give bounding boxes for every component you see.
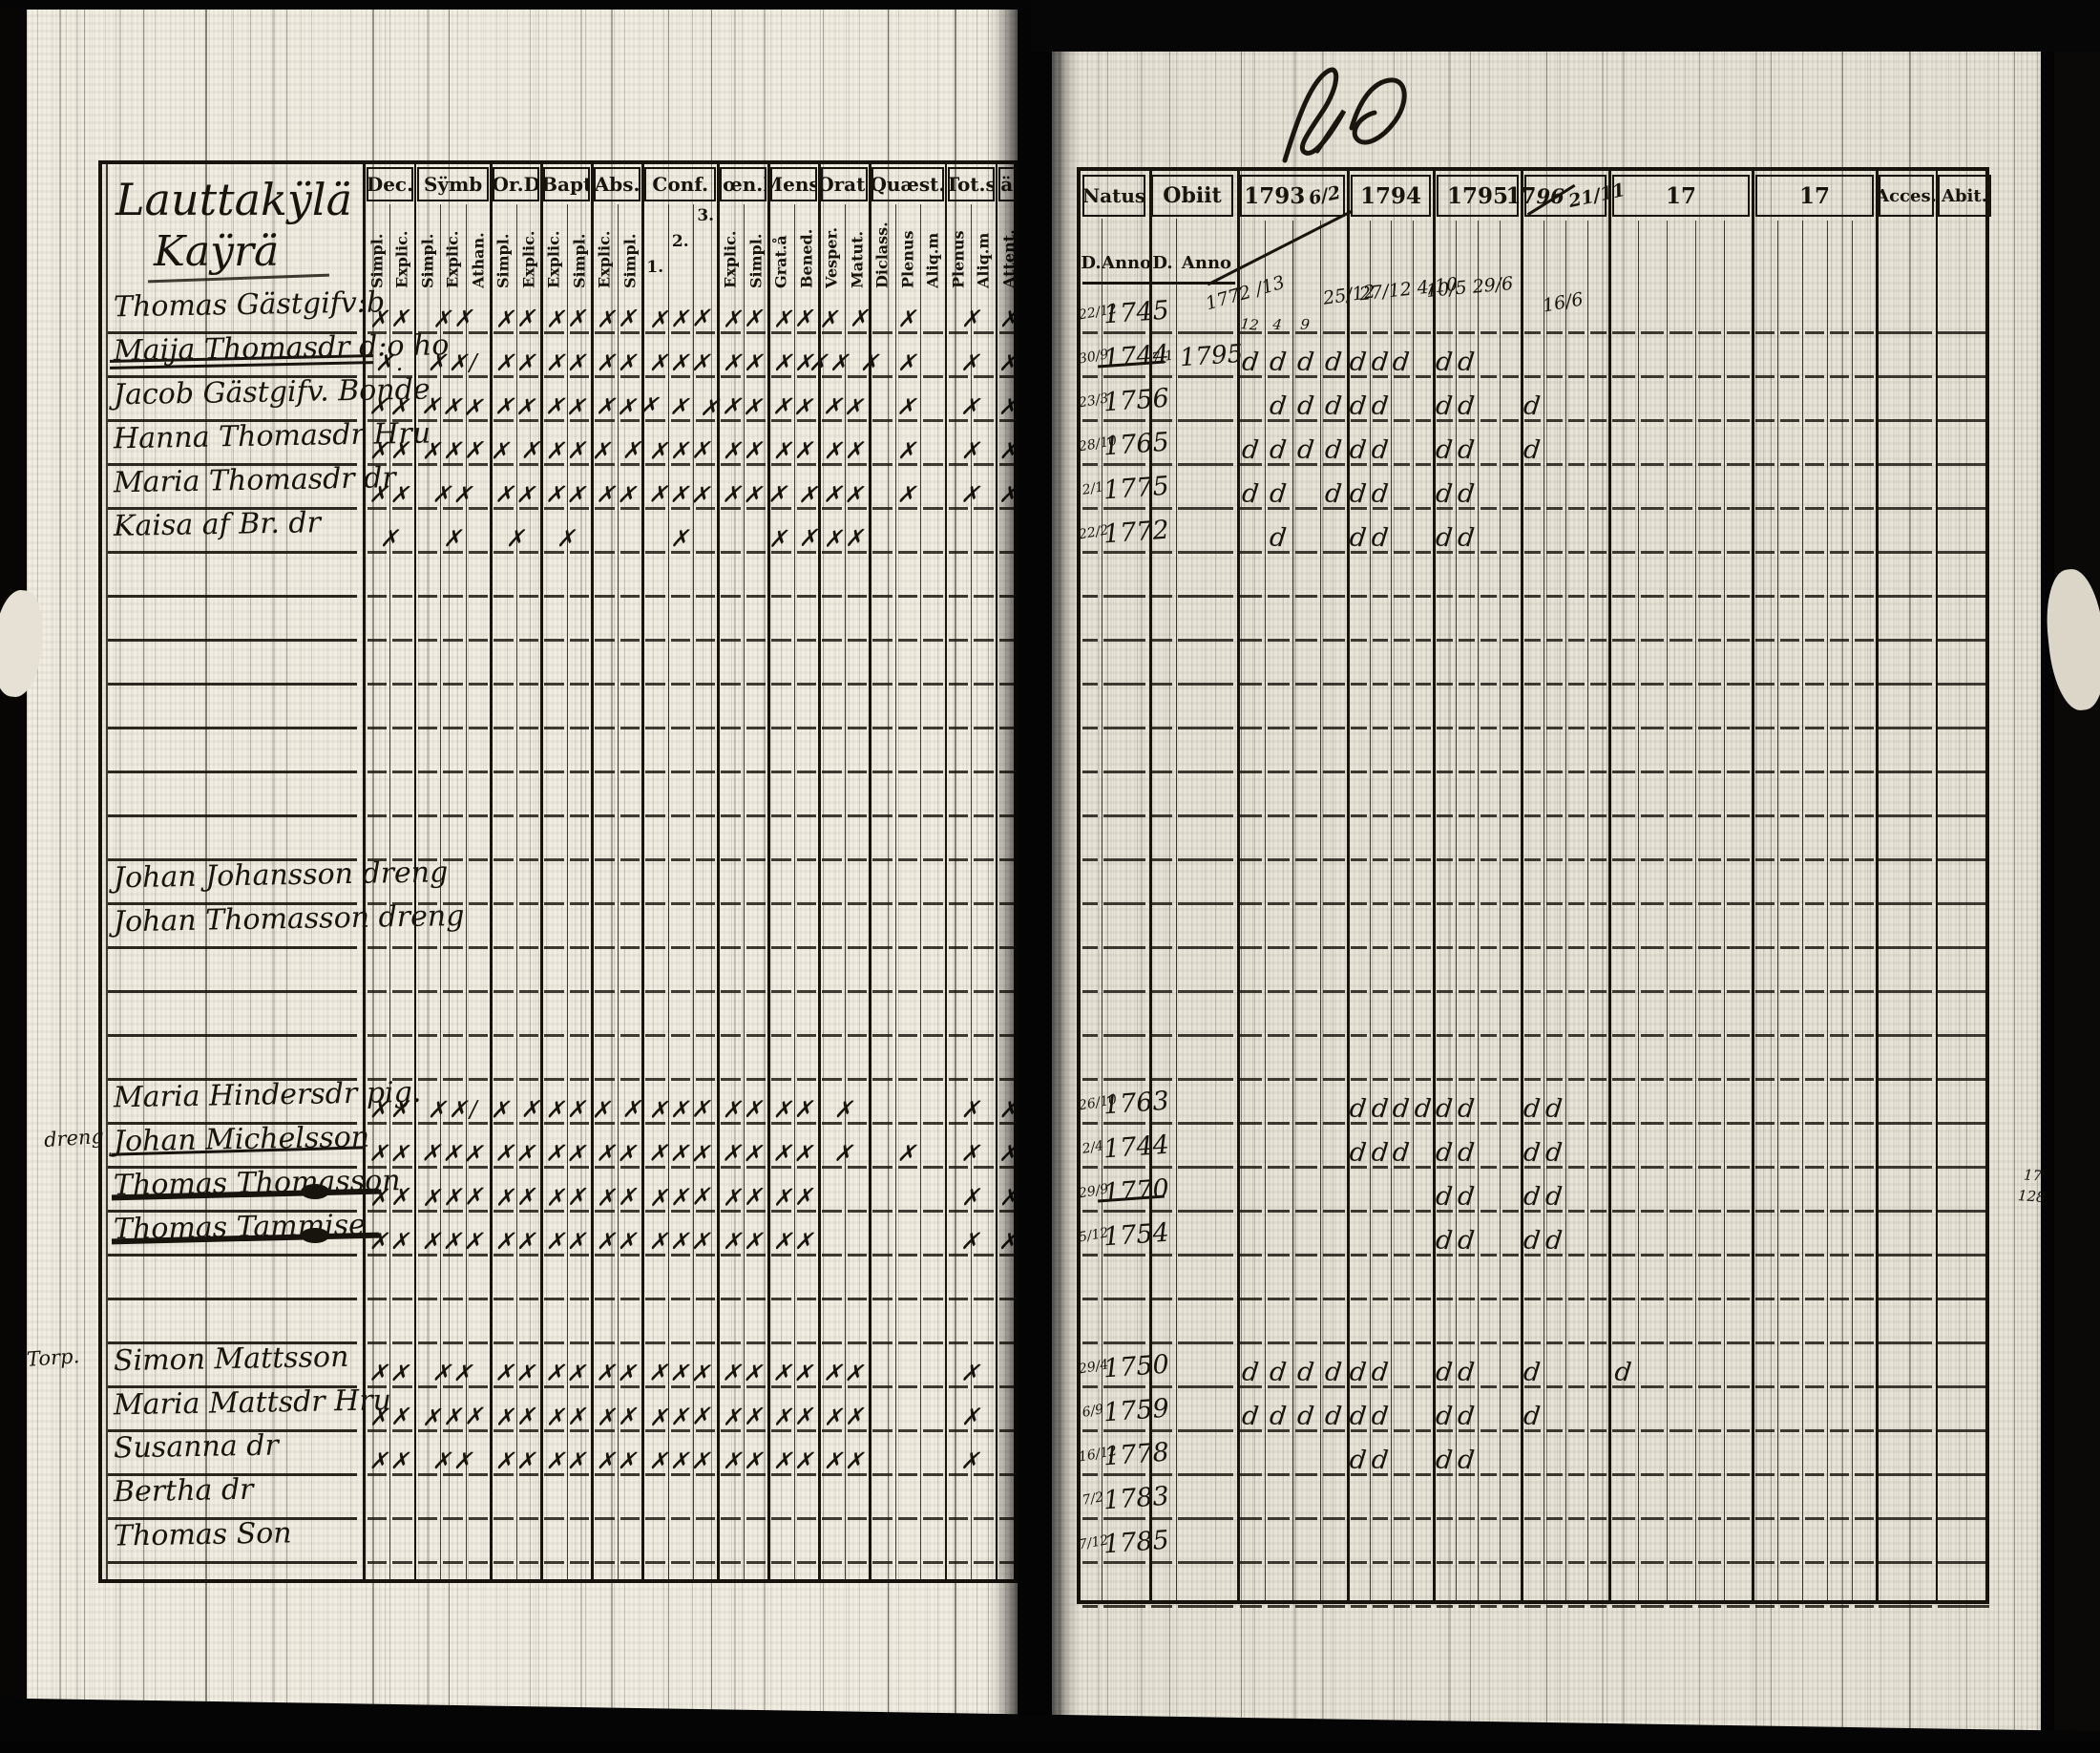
mark-cell: ✗ xyxy=(945,1125,997,1170)
obiit-anno-label: Anno xyxy=(1176,253,1237,273)
streak-line xyxy=(2014,50,2015,1743)
natus-year: 1763 xyxy=(1102,1087,1170,1121)
year-label: 1794 xyxy=(1360,183,1421,209)
natus-year: 1770 xyxy=(1102,1174,1170,1209)
district-heading-line2: Kaÿrä xyxy=(154,227,279,276)
mark-cell: ✗ xyxy=(945,377,997,423)
row-name: Hanna Thomasdr Hru xyxy=(114,418,371,456)
natus-year: 1759 xyxy=(1102,1394,1170,1428)
abit-header: Abit. xyxy=(1938,175,1991,217)
acces-header: Acces. xyxy=(1879,175,1934,217)
mark-cell: ✗ xyxy=(870,421,946,466)
mark-cell: ✗✗ xyxy=(819,1344,871,1389)
row-name: Maria Mattsdr Hru xyxy=(114,1384,371,1423)
margin-note: Torp. xyxy=(26,1344,80,1371)
mark-cell: ✗ xyxy=(945,422,997,467)
mark-cell: ✗✗ xyxy=(591,377,642,423)
communion-mark: d xyxy=(1520,421,1546,467)
streak-line xyxy=(84,8,85,1743)
scanned-ledger-spread: LauttakÿläKaÿräDec.Simpl.Explic.SÿmbSimp… xyxy=(0,0,2100,1753)
row-rule-stripe xyxy=(1394,290,1410,1608)
mark-cell: ✗ xyxy=(540,509,592,555)
natus-year: 1783 xyxy=(1102,1482,1170,1516)
mark-cell: ✗✗ xyxy=(365,422,416,467)
year-sub-line xyxy=(1638,221,1639,1600)
year-label: 1795 xyxy=(1447,183,1508,209)
communion-mark: d xyxy=(1263,465,1295,512)
mark-cell: ✗✗ xyxy=(592,1432,642,1476)
communion-mark: 9 xyxy=(1291,289,1323,336)
row-name: Bertha dr xyxy=(114,1473,254,1510)
mark-cell: ✗✗ xyxy=(718,334,768,378)
communion-mark: d xyxy=(1367,1343,1393,1389)
conf-grade-label: 2. xyxy=(668,232,693,251)
mark-cell: ✗✗ xyxy=(768,1081,820,1126)
mark-cell: ✗✗ xyxy=(491,466,542,511)
year-header-17: 17 xyxy=(1755,175,1874,217)
mark-cell: ✗✗ xyxy=(364,377,415,423)
mark-cell: ✗✗ xyxy=(591,1387,642,1433)
sub-col-label: Explic. xyxy=(542,206,565,288)
row-rule-stripe xyxy=(1879,290,1932,1608)
mark-cell: ✗✗✗ xyxy=(641,289,719,336)
mark-cell: ✗ xyxy=(945,466,997,511)
sub-col-label: Simpl. xyxy=(619,206,641,288)
mark-cell: ✗✗ xyxy=(415,465,492,510)
col-header-Abs.: Abs. xyxy=(594,167,640,201)
mark-cell: ✗✗✗ xyxy=(641,1168,719,1214)
communion-mark: d xyxy=(1367,421,1393,467)
mark-cell: ✗✗ xyxy=(541,1081,593,1126)
mark-cell: ✗✗ xyxy=(541,1125,593,1170)
mark-cell: ✗ xyxy=(946,1432,997,1476)
mark-cell: ✗ ✗ xyxy=(592,1081,643,1126)
col-header-Conf.: Conf. xyxy=(644,167,716,201)
sub-col-label: Bened. xyxy=(795,206,818,288)
communion-mark: d xyxy=(1454,333,1480,379)
communion-mark: d xyxy=(1542,1080,1568,1126)
mark-cell: ✗✗ xyxy=(541,1344,593,1389)
mark-cell: ✗ xyxy=(819,1125,871,1170)
top-right-shadow xyxy=(1031,0,2100,52)
mark-cell: ✗✗ xyxy=(819,509,871,555)
communion-mark: d xyxy=(1454,1431,1480,1477)
year-header-1796: 179621/11 xyxy=(1524,175,1606,217)
mark-cell: ✗✗ xyxy=(364,1387,415,1433)
mark-cell: ✗✗ xyxy=(491,1213,541,1257)
row-name: Jacob Gästgifv. Bonde xyxy=(114,374,371,412)
year-sub-line xyxy=(1500,221,1501,1600)
row-rule-stripe xyxy=(1590,290,1606,1608)
mark-cell: ✗✗ xyxy=(768,289,820,335)
row-rule-stripe xyxy=(1641,290,1664,1608)
mark-cell: ✗ xyxy=(869,289,946,336)
mark-cell: ✗ xyxy=(819,1081,871,1126)
right-table: NatusObiit17936/217941795179621/111717Ac… xyxy=(1077,167,1989,1604)
mark-cell: ✗✗ xyxy=(819,466,871,511)
mark-cell: ✗✗ xyxy=(591,1168,642,1214)
mark-cell: ✗✗ xyxy=(491,289,542,335)
mark-cell: ✗✗✗ xyxy=(415,1124,492,1169)
year-label: 17 xyxy=(1799,183,1830,209)
mark-cell: ✗✗ xyxy=(592,466,643,511)
mark-cell: ✗✗ xyxy=(364,289,415,335)
sub-col-label: Explic. xyxy=(517,206,540,288)
mark-cell: ✗✗ xyxy=(591,289,642,335)
mark-cell: ✗✗ xyxy=(541,1432,592,1476)
mark-cell: ✗✗✗ xyxy=(642,1124,719,1169)
col-header-Dec.: Dec. xyxy=(367,167,413,201)
sub-col-label: Plenus xyxy=(896,206,919,288)
year-sub-line xyxy=(1724,221,1725,1600)
mark-cell: ✗✗ xyxy=(718,1168,769,1214)
mark-cell: ✗ ✗ xyxy=(819,289,871,335)
communion-mark: d xyxy=(1607,1343,1641,1390)
mark-cell: ✗✗✗ xyxy=(642,1213,718,1257)
communion-mark: d xyxy=(1367,377,1393,423)
mark-cell: ✗✗✗ xyxy=(641,1387,719,1434)
streak-line xyxy=(1060,50,1061,1743)
obiit-year: 1795 xyxy=(1179,340,1244,373)
mark-cell: ✗✗✗ xyxy=(642,1432,718,1476)
mark-cell: ✗✗ xyxy=(768,1344,820,1389)
communion-mark: d xyxy=(1454,1343,1480,1389)
row-rule-stripe xyxy=(1612,290,1635,1608)
row-rule-stripe xyxy=(1830,290,1849,1608)
mark-cell: ✗✗ xyxy=(819,422,871,467)
mark-cell: ✗✗ ✗ xyxy=(819,334,870,378)
mark-cell: ✗ xyxy=(945,1344,997,1389)
communion-mark: d xyxy=(1367,465,1393,511)
col-header-Läs.: Läs. xyxy=(998,167,1019,201)
mark-cell: ✗ xyxy=(641,509,719,556)
year-header-1793: 17936/2 xyxy=(1240,175,1345,217)
row-rule-stripe xyxy=(1178,290,1233,1608)
year-sub-line xyxy=(1413,221,1414,1600)
mark-cell: ✗✗ xyxy=(491,334,541,378)
left-book-edge xyxy=(0,0,27,1753)
natus-header: Natus xyxy=(1082,175,1145,217)
gutter-shadow xyxy=(1018,0,1052,1753)
mark-cell: ✗✗ xyxy=(768,377,820,423)
mark-cell: ✗✗ xyxy=(592,1344,643,1389)
communion-mark: d xyxy=(1454,1124,1480,1170)
mark-cell: ✗✗ xyxy=(541,1213,592,1257)
mark-cell: ✗✗✗ xyxy=(642,1080,719,1125)
conf-grade-label: 3. xyxy=(693,206,718,225)
col-header-Cœn.D: Cœn.D xyxy=(720,167,766,201)
row-rule-stripe xyxy=(1669,290,1692,1608)
row-rule-stripe xyxy=(1727,290,1750,1608)
mark-cell: ✗✗ xyxy=(768,1387,820,1433)
row-rule-stripe xyxy=(1698,290,1721,1608)
row-name: Johan Thomasson dreng xyxy=(114,901,371,940)
mark-cell: ✗ xyxy=(946,334,997,378)
mark-cell: ✗✗ xyxy=(718,466,769,511)
mark-cell: ✗✗ xyxy=(540,1168,592,1214)
year-header-1794: 1794 xyxy=(1351,175,1431,217)
communion-mark: d xyxy=(1454,465,1480,511)
row-rule-stripe xyxy=(1938,290,1989,1608)
natus-year: 1754 xyxy=(1102,1218,1170,1253)
row-rule-stripe xyxy=(1780,290,1799,1608)
mark-cell: ✗✗ xyxy=(540,1387,592,1433)
row-rule-stripe xyxy=(1805,290,1824,1608)
natus-d-label: D. xyxy=(1081,253,1102,273)
mark-cell: ✗✗ xyxy=(541,334,592,378)
mark-cell: ✗ xyxy=(870,465,946,510)
mark-cell: ✗✗ xyxy=(718,1213,768,1257)
mark-cell: ✗ xyxy=(870,1124,946,1169)
mark-cell: ✗✗ xyxy=(718,1387,769,1433)
mark-cell: ✗ ✗ xyxy=(768,509,820,555)
mark-cell: ✗ xyxy=(870,334,945,378)
communion-mark: d xyxy=(1520,1387,1546,1433)
row-rule-stripe xyxy=(1416,290,1432,1608)
year-sub-line xyxy=(1565,221,1566,1600)
mark-cell: ✗✗ xyxy=(491,1387,542,1433)
col-header-Quæst.: Quæst. xyxy=(871,167,943,201)
row-rule-stripe xyxy=(1502,290,1519,1608)
natus-year: 1756 xyxy=(1102,384,1170,418)
mark-cell: ✗✗ xyxy=(592,334,642,378)
row-name: Maria Thomasdr dr xyxy=(114,462,371,500)
mark-cell: ✗ xyxy=(945,1168,997,1214)
col-header-Bapt: Bapt xyxy=(543,167,590,201)
mark-cell: ✗✗ xyxy=(540,377,592,423)
natus-year: 1745 xyxy=(1102,296,1170,330)
row-name: Maria Hindersdr pig. xyxy=(114,1077,371,1115)
mark-cell: ✗✗✗ xyxy=(642,334,718,378)
mark-cell: ✗✗ xyxy=(768,1213,819,1257)
year-sub-line xyxy=(1852,221,1853,1600)
year-note: 6/2 xyxy=(1307,182,1342,209)
communion-mark: d xyxy=(1454,1212,1480,1257)
mark-cell: ✗✗✗ xyxy=(642,465,719,510)
natus-year: 1765 xyxy=(1102,428,1170,462)
mark-cell: ✗✗ xyxy=(768,1168,820,1214)
col-line xyxy=(1176,219,1177,1600)
communion-mark: d xyxy=(1454,1168,1480,1214)
row-rule-stripe xyxy=(1546,290,1563,1608)
mark-cell: ✗ xyxy=(945,1081,997,1126)
mark-cell: ✗ xyxy=(945,289,997,335)
folio-flourish xyxy=(1256,59,1438,174)
sub-col-label: Explic. xyxy=(441,206,464,288)
mark-cell: ✗✗ xyxy=(540,289,592,335)
communion-mark: d xyxy=(1389,1124,1415,1170)
col-line xyxy=(1752,171,1754,1600)
mark-cell: ✗✗ xyxy=(491,1432,541,1476)
natus-year: 1778 xyxy=(1102,1438,1170,1472)
ink-blob xyxy=(301,1184,329,1199)
mark-cell: ✗✗✗ xyxy=(642,421,719,466)
natus-year: 1750 xyxy=(1102,1350,1170,1384)
year-sub-line xyxy=(1695,221,1696,1600)
conf-grade-label: 1. xyxy=(642,258,667,277)
mark-cell: ✗ ✗ xyxy=(491,1081,542,1126)
row-name: Johan Johansson dreng xyxy=(114,857,371,896)
row-rule-stripe xyxy=(1855,290,1874,1608)
mark-cell: ✗✗ xyxy=(491,1125,542,1170)
right-clasp xyxy=(2041,566,2100,712)
mark-cell: ✗✗ xyxy=(718,1432,768,1476)
row-name: Thomas Son xyxy=(114,1516,292,1552)
mark-cell: ✗ ✗ xyxy=(592,422,643,467)
mark-cell: ✗✗ xyxy=(415,1343,492,1388)
sub-col-label: Plenus xyxy=(947,206,970,288)
mark-cell: ✗✗ xyxy=(365,1432,415,1476)
communion-mark: d xyxy=(1454,377,1480,423)
row-rule-stripe xyxy=(1568,290,1585,1608)
mark-cell: ✗ xyxy=(364,509,415,555)
col-header-Mens.: Mens. xyxy=(770,167,817,201)
mark-cell: ✗✗ xyxy=(365,1081,416,1126)
mark-cell: ✗✗ xyxy=(718,422,769,467)
year-label: 17 xyxy=(1666,183,1696,209)
row-rule-stripe xyxy=(1480,290,1497,1608)
col-header-Tot.s: Tot.s xyxy=(948,167,995,201)
communion-mark: d xyxy=(1454,509,1480,555)
sub-col-label: Explic. xyxy=(390,206,413,288)
row-name: Simon Mattsson xyxy=(114,1341,349,1378)
mark-cell: ✗✗ xyxy=(491,377,542,423)
sub-col-label: Diclass. xyxy=(871,206,893,288)
natus-year: 1772 xyxy=(1102,516,1170,550)
communion-mark: d xyxy=(1520,377,1546,423)
margin-note: dreng xyxy=(43,1125,104,1151)
mark-cell: ✗✗ xyxy=(768,1125,820,1170)
sub-col-label: Grat.å xyxy=(769,206,792,288)
communion-mark: d xyxy=(1454,421,1480,467)
mark-cell: ✗✗ xyxy=(718,1125,769,1170)
mark-cell: ✗✗ xyxy=(592,1125,643,1170)
mark-cell: ✗✗ xyxy=(819,377,871,423)
edge-note-top: 17 xyxy=(2023,1166,2042,1184)
mark-cell: ✗✗ xyxy=(819,1387,871,1433)
mark-cell: ✗✗✗ xyxy=(415,421,492,466)
row-name: Susanna dr xyxy=(114,1428,279,1465)
year-header-17: 17 xyxy=(1612,175,1750,217)
communion-mark: d xyxy=(1367,1387,1393,1433)
mark-cell: ✗✗ xyxy=(718,377,769,423)
mark-cell: ✗ ✗ xyxy=(491,422,542,467)
year-sub-line xyxy=(1777,221,1778,1600)
mark-cell: ✗✗ xyxy=(491,1168,542,1214)
mark-cell: ✗✗ xyxy=(768,422,820,467)
mark-cell: ✗✗ xyxy=(415,1432,491,1476)
mark-cell: ✗✗ xyxy=(592,1213,642,1257)
communion-mark: d xyxy=(1542,1168,1568,1214)
folio-flourish-icon xyxy=(1256,59,1438,174)
mark-cell: ✗✗ xyxy=(365,1344,416,1389)
mark-cell: ✗✗ xyxy=(365,1125,416,1170)
sub-col-label: Simpl. xyxy=(366,206,388,288)
natus-year: 1744 xyxy=(1102,1130,1170,1165)
year-sub-line xyxy=(1802,221,1803,1600)
sub-col-label: Simpl. xyxy=(416,206,439,288)
natus-year: 1775 xyxy=(1102,472,1170,506)
communion-mark: d xyxy=(1367,1431,1393,1477)
mark-cell: ✗ ✗ ✗ xyxy=(641,377,719,424)
sub-col-label: Explic. xyxy=(593,206,616,288)
year-sub-line xyxy=(1827,221,1828,1600)
sub-col-label: Simpl. xyxy=(568,206,591,288)
bottom-edge-shadow xyxy=(0,1742,2100,1753)
year-sub-line xyxy=(1667,221,1668,1600)
communion-mark: d xyxy=(1542,1212,1568,1257)
mark-cell: ✗✗✗ xyxy=(414,1168,492,1214)
row-name: Kaisa af Br. dr xyxy=(114,506,322,543)
mark-cell: ✗✗ xyxy=(718,1081,769,1126)
natus-anno-label: Anno xyxy=(1102,253,1149,273)
natus-year: 1785 xyxy=(1102,1526,1170,1560)
district-heading-line1: Lauttakÿlä xyxy=(115,174,352,225)
row-rule-stripe xyxy=(1755,290,1774,1608)
streak-line xyxy=(59,8,61,1743)
mark-cell: ✗✗ xyxy=(491,1344,542,1389)
communion-mark: d xyxy=(1263,509,1295,556)
col-header-Or.D: Or.D xyxy=(493,167,539,201)
mark-cell: ✗✗✗ xyxy=(642,1343,719,1388)
mark-cell: ✗ xyxy=(491,509,542,555)
sub-col-label: Vesper. xyxy=(820,206,843,288)
col-header-Orat.: Orat. xyxy=(821,167,868,201)
mark-cell: ✗✗ xyxy=(541,466,593,511)
communion-mark: d xyxy=(1454,1080,1480,1126)
ink-blob xyxy=(301,1228,329,1243)
mark-cell: ✗✗✗ xyxy=(414,1387,492,1434)
mark-cell: ✗✗ xyxy=(768,1432,819,1476)
col-line xyxy=(1102,219,1102,1600)
sub-col-label: Matut. xyxy=(846,206,869,288)
mark-cell: ✗✗ xyxy=(541,422,593,467)
obiit-d-label: D. xyxy=(1149,253,1176,273)
right-book-edge xyxy=(2054,0,2100,1753)
year-label: 1793 xyxy=(1244,183,1305,209)
communion-mark: d xyxy=(1454,1387,1480,1433)
mark-cell: ✗ xyxy=(946,1213,997,1257)
row-name: Thomas Gästgifv:b xyxy=(114,286,371,325)
mark-cell: ✗ xyxy=(945,1387,997,1433)
mark-cell: ✗✗✗ xyxy=(415,1213,491,1257)
sub-col-label: Simpl. xyxy=(492,206,514,288)
sub-col-label: Explic. xyxy=(719,206,742,288)
sub-col-label: Athan. xyxy=(467,206,490,288)
mark-cell: ✗ xyxy=(414,509,492,556)
mark-cell: ✗ ✗ xyxy=(768,466,820,511)
edge-note-bottom: 128 xyxy=(2017,1187,2046,1206)
communion-mark: d xyxy=(1542,1124,1568,1170)
communion-mark: d xyxy=(1389,333,1415,379)
sub-col-label: Aliq.m xyxy=(921,206,944,288)
year-sub-line xyxy=(1587,221,1588,1600)
mark-cell: ✗✗ xyxy=(718,1344,769,1389)
mark-cell: ✗✗/ xyxy=(415,334,491,378)
obiit-header: Obiit xyxy=(1151,175,1233,217)
sub-col-label: Simpl. xyxy=(745,206,767,288)
mark-cell: ✗✗/ xyxy=(415,1080,492,1125)
col-header-Sÿmb: Sÿmb xyxy=(417,167,489,201)
communion-mark: d xyxy=(1367,509,1393,555)
mark-cell: ✗✗ xyxy=(819,1432,870,1476)
mark-cell: ✗✗ xyxy=(365,466,416,511)
communion-mark: d xyxy=(1520,1343,1546,1389)
left-table: LauttakÿläKaÿräDec.Simpl.Explic.SÿmbSimp… xyxy=(98,160,1018,1583)
mark-cell: ✗ xyxy=(869,377,946,424)
sub-col-label: Aliq.m xyxy=(972,206,995,288)
mark-cell: ✗✗ xyxy=(718,289,769,335)
